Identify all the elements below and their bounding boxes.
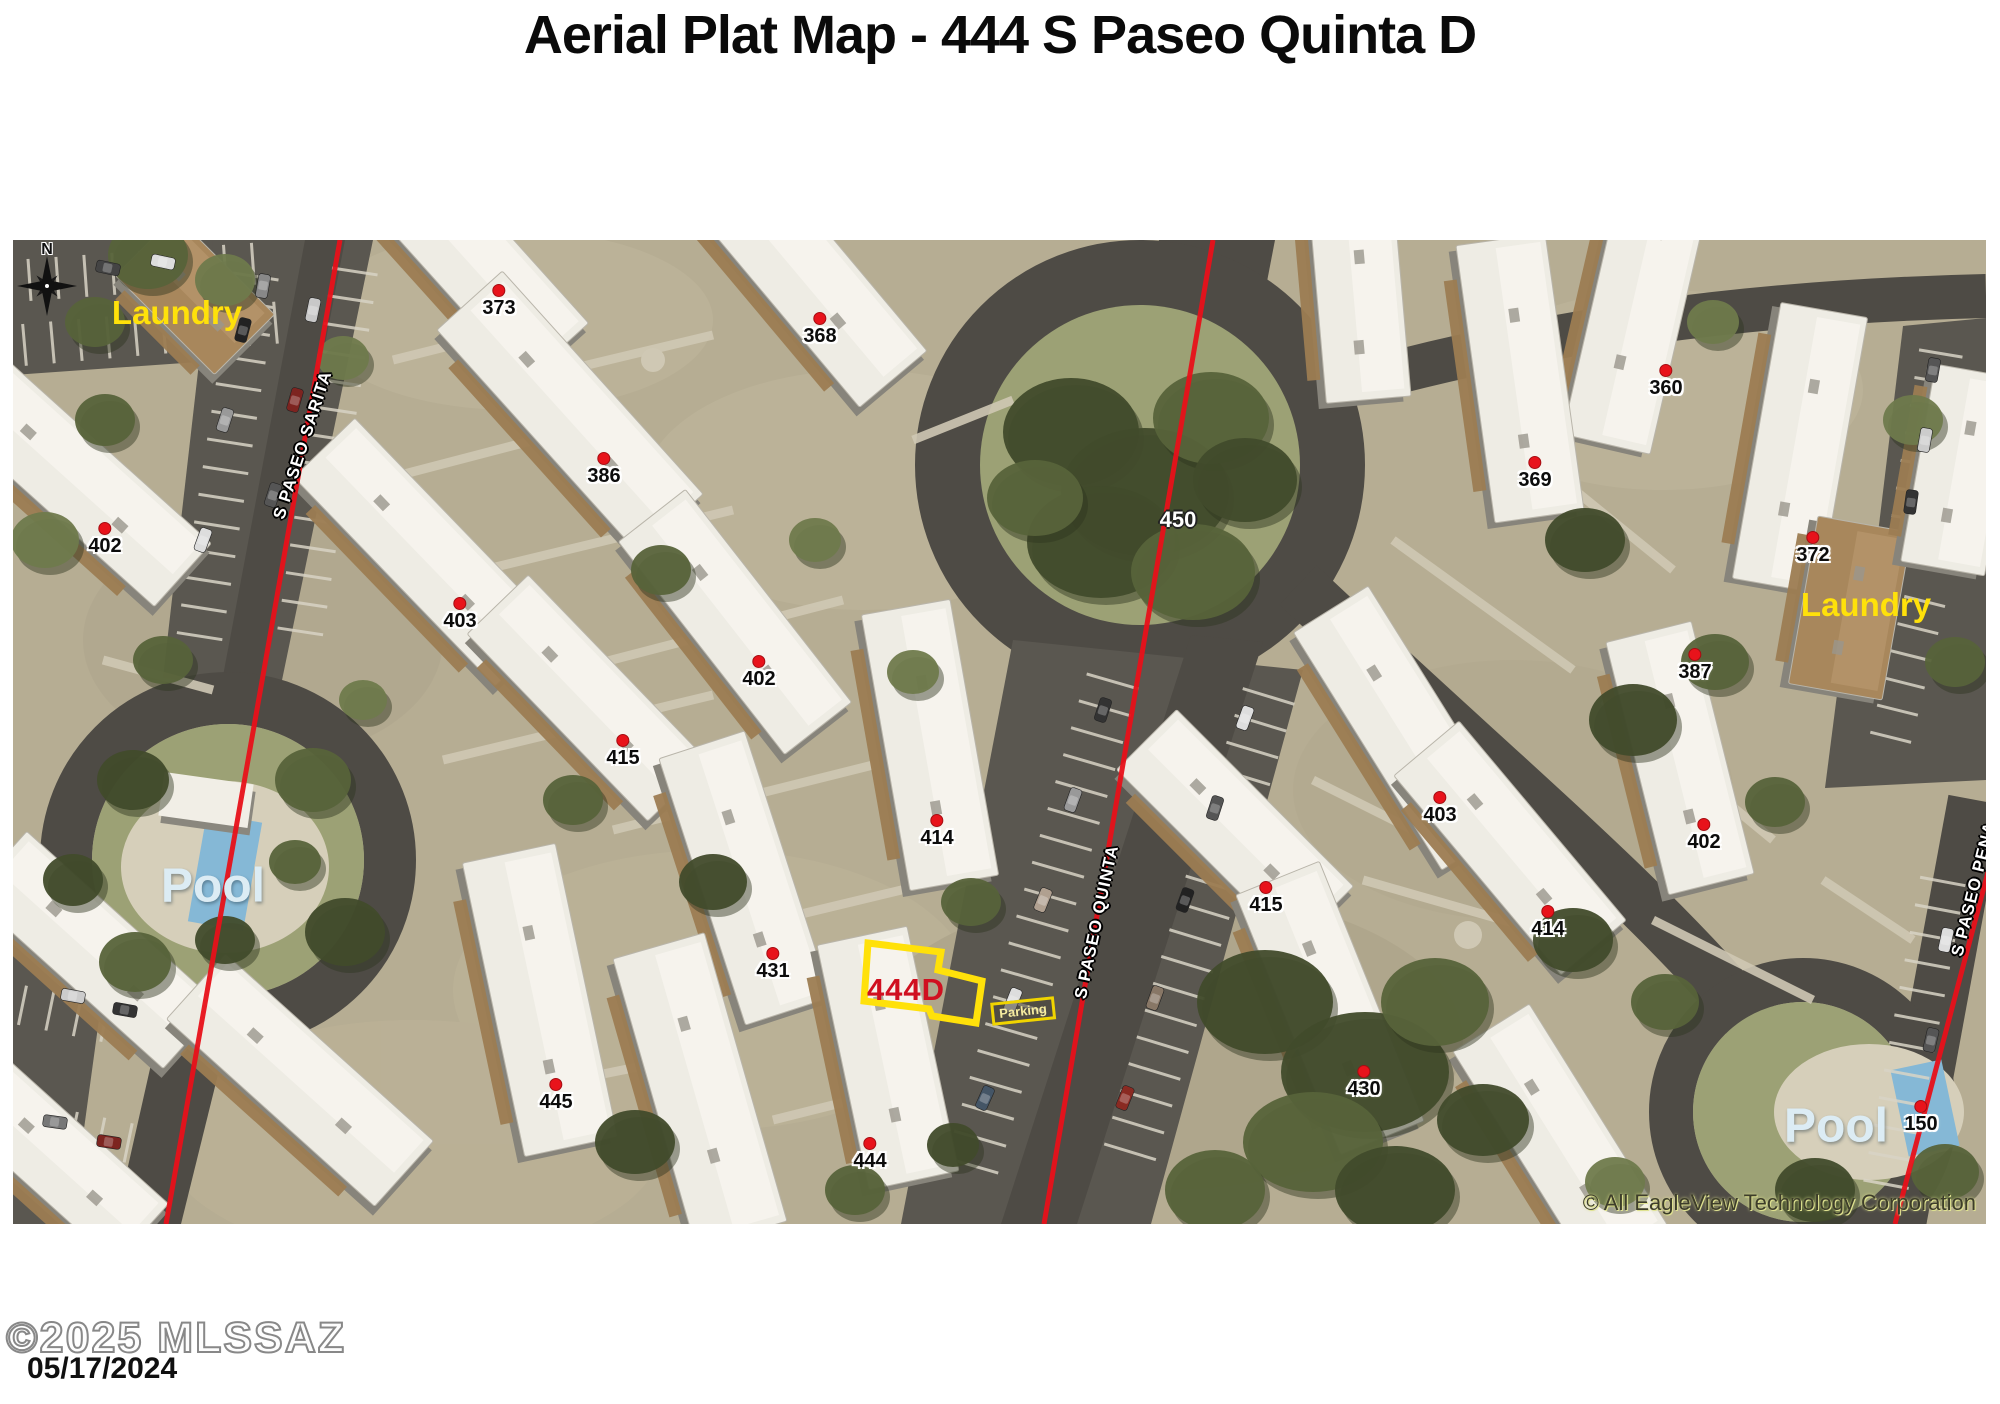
- aerial-photo: [13, 240, 1986, 1224]
- photo-date: 05/17/2024: [27, 1352, 177, 1386]
- aerial-map: N S PASEO SARITAS PASEO QUINTAS PASEO PE…: [13, 240, 1986, 1224]
- page-title: Aerial Plat Map - 444 S Paseo Quinta D: [0, 4, 2000, 66]
